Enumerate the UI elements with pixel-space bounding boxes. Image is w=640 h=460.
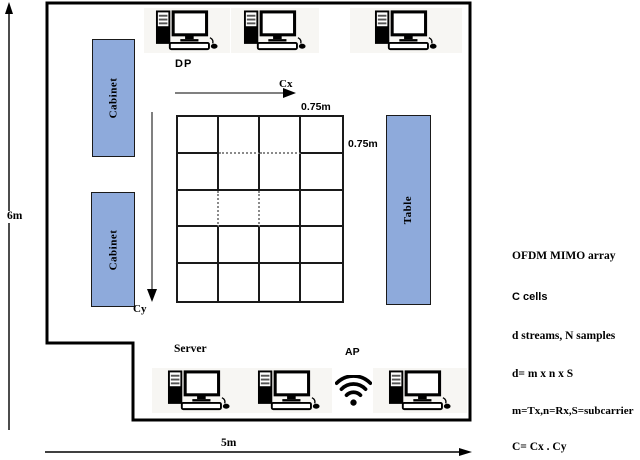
workstation-top-2 bbox=[231, 8, 319, 53]
legend-c-cells: C cells bbox=[512, 291, 547, 303]
cell-grid bbox=[176, 115, 344, 303]
workstation-top-3 bbox=[350, 8, 462, 53]
desktop-computer-icon bbox=[243, 10, 307, 52]
desktop-computer-icon bbox=[388, 370, 452, 412]
table: Table bbox=[386, 115, 431, 305]
grid-cell bbox=[178, 227, 219, 264]
cabinet-bottom: Cabinet bbox=[91, 192, 135, 307]
grid-cell bbox=[178, 191, 219, 228]
indoor-floorplan-figure: Cabinet Cabinet Table DP Cx Cy 0.75m 0.7… bbox=[0, 0, 640, 460]
width-dimension-arrow bbox=[45, 448, 472, 456]
workstation-top-1 bbox=[144, 8, 230, 53]
cell-width-label: 0.75m bbox=[301, 102, 331, 113]
cabinet-top: Cabinet bbox=[92, 39, 135, 157]
cell-height-label: 0.75m bbox=[348, 139, 378, 150]
grid-cell bbox=[301, 154, 342, 191]
grid-cell bbox=[301, 227, 342, 264]
wifi-icon bbox=[335, 375, 372, 407]
cabinet-top-label: Cabinet bbox=[108, 78, 120, 119]
cx-axis-label: Cx bbox=[279, 79, 292, 90]
cabinet-bottom-label: Cabinet bbox=[107, 229, 119, 270]
grid-cell bbox=[219, 154, 260, 191]
grid-cell bbox=[260, 264, 301, 301]
desktop-computer-icon bbox=[155, 10, 219, 52]
dp-label: DP bbox=[175, 59, 192, 70]
grid-cell bbox=[260, 191, 301, 228]
grid-cell bbox=[219, 117, 260, 154]
grid-cell bbox=[260, 117, 301, 154]
desktop-computer-icon bbox=[167, 370, 231, 412]
grid-cell bbox=[260, 227, 301, 264]
grid-cell bbox=[301, 117, 342, 154]
room-height-label: 6m bbox=[6, 211, 23, 223]
table-label: Table bbox=[402, 196, 414, 224]
desktop-computer-icon bbox=[374, 10, 438, 52]
grid-cell bbox=[178, 117, 219, 154]
grid-cell bbox=[219, 227, 260, 264]
server-computer-1 bbox=[152, 368, 246, 413]
grid-cell bbox=[219, 191, 260, 228]
ap-label: AP bbox=[345, 347, 360, 358]
desktop-computer-icon bbox=[257, 370, 321, 412]
server-computer-2 bbox=[246, 368, 332, 413]
cx-axis-arrow bbox=[175, 88, 296, 98]
cy-axis-arrow bbox=[147, 112, 157, 302]
legend-d-formula: d= m x n x S bbox=[512, 368, 573, 380]
grid-cell bbox=[178, 264, 219, 301]
grid-cell bbox=[219, 264, 260, 301]
grid-cell bbox=[178, 154, 219, 191]
legend-mns-definition: m=Tx,n=Rx,S=subcarrier bbox=[512, 405, 633, 417]
legend-c-formula: C= Cx . Cy bbox=[512, 441, 566, 453]
workstation-bottom bbox=[373, 368, 467, 413]
room-width-label: 5m bbox=[221, 438, 236, 450]
legend-ofdm-mimo: OFDM MIMO array bbox=[512, 250, 615, 262]
access-point bbox=[333, 368, 373, 413]
cy-axis-label: Cy bbox=[133, 304, 146, 315]
grid-cell bbox=[301, 191, 342, 228]
legend-streams-samples: d streams, N samples bbox=[512, 330, 615, 342]
server-label: Server bbox=[174, 344, 207, 356]
grid-cell bbox=[301, 264, 342, 301]
grid-cell bbox=[260, 154, 301, 191]
